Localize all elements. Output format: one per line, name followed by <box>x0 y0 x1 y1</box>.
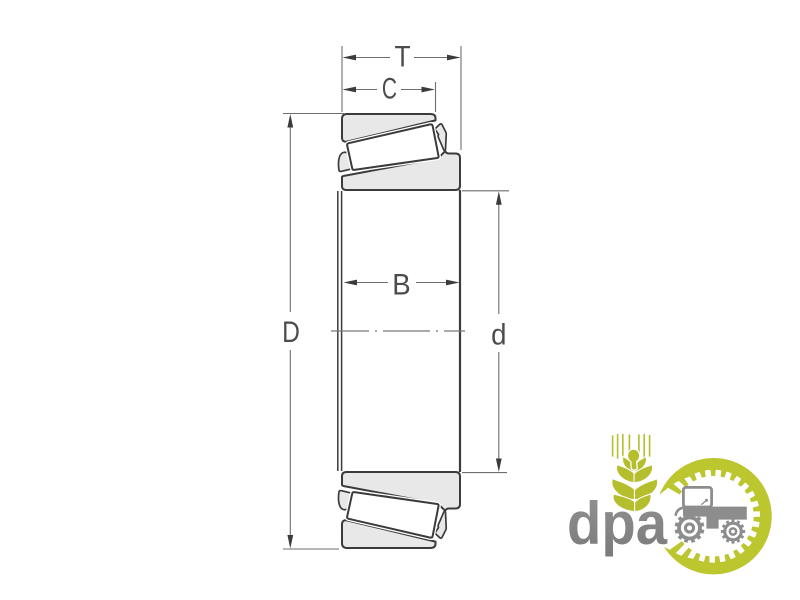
svg-text:d: d <box>491 318 506 351</box>
svg-text:T: T <box>394 39 410 73</box>
svg-text:dpa: dpa <box>567 490 668 557</box>
svg-text:C: C <box>382 73 397 105</box>
svg-text:B: B <box>392 268 410 301</box>
svg-text:D: D <box>282 315 300 349</box>
